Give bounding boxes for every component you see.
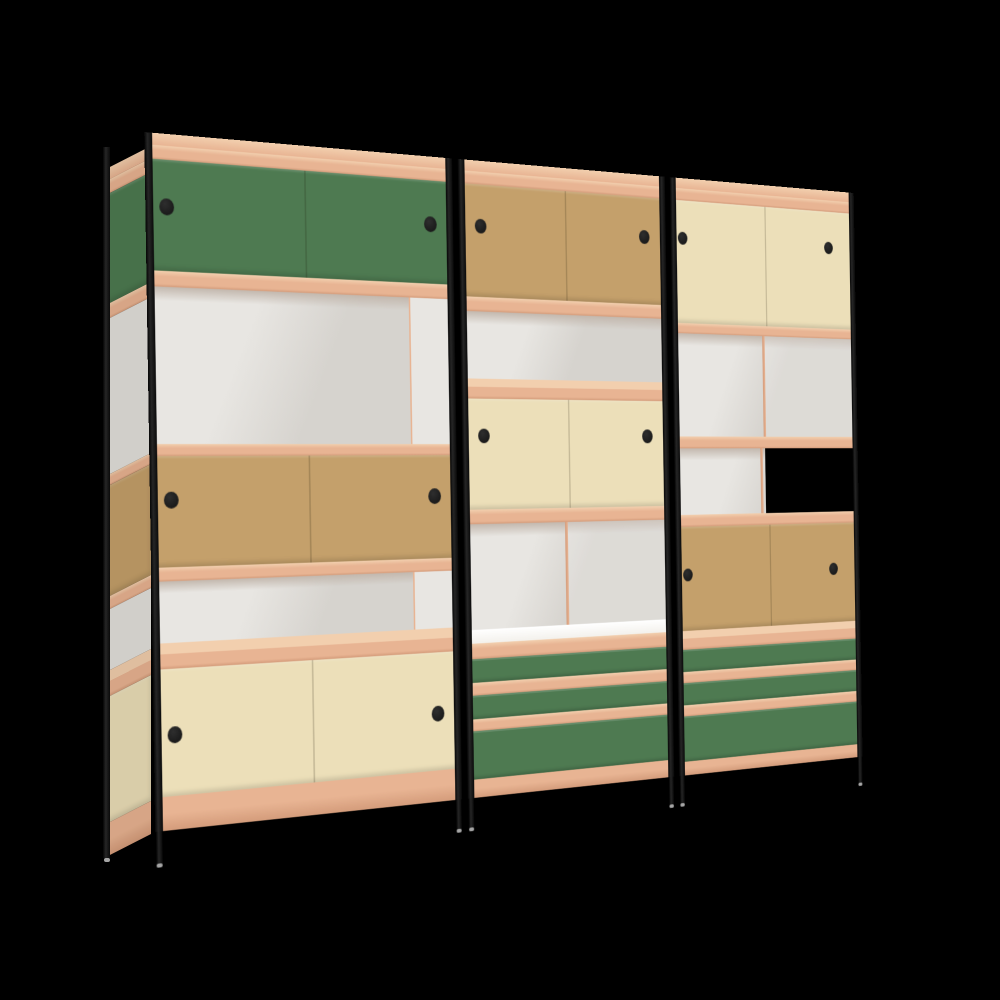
sliding-door-seam [568, 400, 571, 508]
door-pull-hole [639, 230, 650, 244]
frame-leg [680, 776, 685, 804]
door-pull-hole [164, 492, 179, 509]
foot-glide [669, 804, 674, 808]
frame-leg [156, 831, 163, 864]
kraft_tan-sliding-door-row [149, 455, 458, 568]
compartment-right-half [568, 520, 672, 625]
bay-right [670, 177, 863, 810]
foot-glide [858, 782, 862, 786]
open-compartment [147, 286, 457, 444]
foot-glide [104, 858, 110, 862]
sliding-door-seam [764, 207, 767, 327]
side-open-compartment [104, 297, 151, 476]
door-pull-hole [642, 430, 653, 444]
open-compartment [464, 520, 672, 631]
frame-leg [858, 757, 862, 783]
foot-glide [680, 803, 685, 807]
sliding-door-seam [312, 660, 316, 782]
sliding-door-seam [769, 525, 772, 626]
foot-glide [457, 829, 462, 833]
cream-sliding-door-row [462, 398, 670, 509]
kraft_tan-sliding-door-row [675, 522, 860, 631]
plywood-edge-strip [674, 436, 858, 448]
open-compartment [674, 448, 859, 515]
door-pull-hole [683, 568, 693, 581]
scene-background [0, 0, 1000, 1000]
door-pull-hole [678, 232, 688, 245]
frame-leg [669, 777, 674, 805]
cream-sliding-door-row [670, 199, 856, 329]
bay-left [144, 132, 462, 872]
door-pull-hole [475, 218, 487, 233]
frame-leg [456, 799, 462, 829]
door-pull-hole [829, 562, 838, 575]
frame-leg [469, 798, 475, 828]
door-pull-hole [168, 726, 183, 744]
foot-glide [157, 863, 163, 868]
sliding-door-seam [309, 456, 312, 563]
open-compartment [460, 311, 668, 383]
open-compartment [672, 333, 857, 437]
door-pull-hole [478, 429, 490, 444]
door-pull-hole [428, 489, 441, 505]
door-pull-hole [432, 705, 445, 722]
foot-glide [469, 827, 474, 831]
compartment-right-half [765, 336, 858, 437]
door-pull-hole [824, 242, 833, 255]
kraft_tan-sliding-door-row [458, 183, 667, 306]
sliding-door-seam [304, 171, 307, 278]
sliding-door-seam [564, 191, 567, 301]
shelving-unit [144, 132, 863, 872]
open-back-void [765, 448, 859, 513]
door-pull-hole [424, 216, 437, 233]
side-cream-sliding-door-row [104, 675, 151, 825]
side-panel [104, 146, 151, 858]
frame-post-far-left [103, 147, 110, 858]
door-pull-hole [160, 198, 175, 216]
bay-middle [458, 159, 675, 835]
